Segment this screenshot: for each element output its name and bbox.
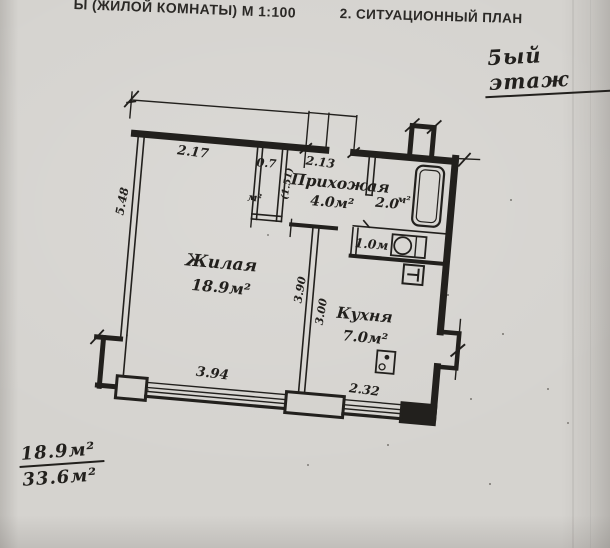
labels: Жилая 18.9м² Прихожая 4.0м² Кухня 7.0м² … — [98, 137, 414, 400]
bathtub-icon — [412, 165, 445, 227]
dim-kitchen-depth: 3.00 — [313, 297, 331, 326]
wall-left-double — [117, 137, 144, 379]
dim-kitchen-window: 2.32 — [347, 380, 380, 399]
bathroom-unit: м² — [396, 195, 411, 207]
window-kitchen — [343, 400, 402, 419]
toilet-icon — [391, 234, 427, 258]
kitchen-sink-icon — [402, 264, 424, 285]
closet-unit: м² — [247, 191, 263, 204]
document-title-fragment: Ы (ЖИЛОЙ КОМНАТЫ) М 1:100 — [73, 0, 296, 21]
bottom-wall — [115, 376, 436, 426]
dim-left-wall: 5.48 — [112, 186, 131, 216]
floor-number-note: 5ый этаж — [483, 39, 610, 99]
dim-living-window: 3.94 — [195, 364, 230, 384]
wall-pier — [400, 403, 436, 425]
dim-hallway-width: 2.13 — [304, 153, 336, 171]
closet-area: 0.7 — [256, 155, 277, 171]
situational-plan-heading: 2. СИТУАЦИОННЫЙ ПЛАН — [340, 6, 523, 26]
floor-plan-svg: Жилая 18.9м² Прихожая 4.0м² Кухня 7.0м² … — [61, 80, 566, 539]
photographed-floor-plan-page: { "header": { "left": "Ы (ЖИЛОЙ КОМНАТЫ)… — [0, 0, 610, 548]
wall-top-left — [134, 133, 325, 150]
floor-plan: Жилая 18.9м² Прихожая 4.0м² Кухня 7.0м² … — [61, 80, 566, 539]
wall-pier — [285, 392, 345, 418]
hallway-area: 4.0м² — [310, 193, 355, 213]
living-room-name: Жилая — [183, 250, 258, 276]
dimension-line-top — [124, 90, 310, 133]
wall-pier — [115, 376, 147, 401]
dim-living-top: 2.17 — [175, 143, 209, 162]
area-summary: 18.9м² 33.6м² — [18, 438, 106, 491]
toilet-area: 1.0м — [354, 235, 389, 253]
kitchen-name: Кухня — [335, 303, 394, 327]
kitchen-area: 7.0м² — [342, 327, 389, 348]
living-room-area: 18.9м² — [191, 275, 252, 299]
window-living — [146, 382, 287, 408]
stove-icon — [376, 350, 396, 373]
hallway-name: Прихожая — [289, 169, 390, 197]
